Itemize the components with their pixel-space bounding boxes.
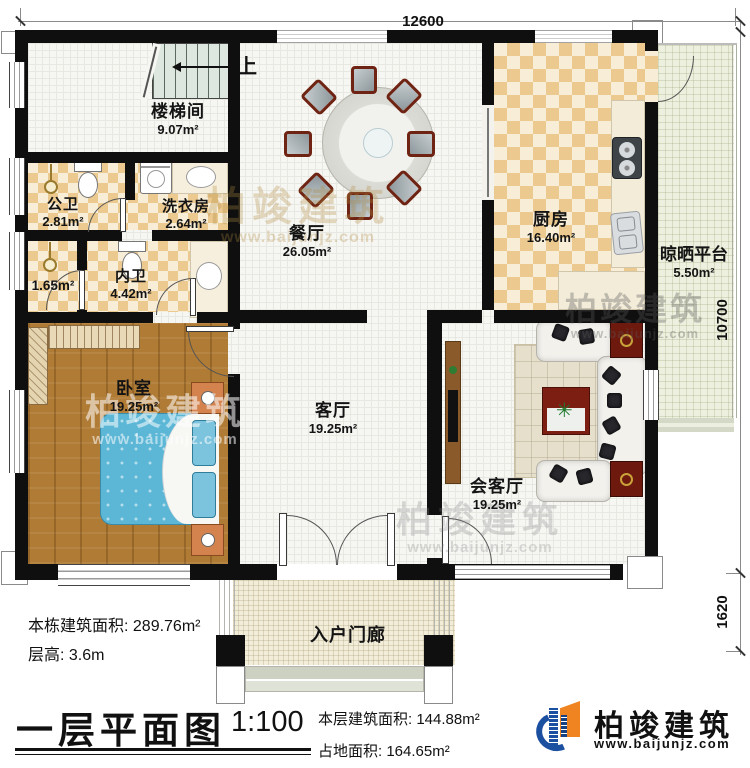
sofa-pillow bbox=[607, 393, 622, 408]
pillow bbox=[192, 472, 216, 518]
wall bbox=[645, 102, 658, 557]
window bbox=[9, 390, 25, 473]
land-area: 占地面积: 164.65m² bbox=[318, 740, 450, 761]
stove bbox=[612, 137, 642, 179]
room-label-stairwell: 楼梯间9.07m² bbox=[151, 102, 205, 138]
room-label-kitchen: 厨房16.40m² bbox=[527, 210, 575, 246]
wall bbox=[15, 312, 153, 323]
room-area: 16.40m² bbox=[527, 230, 575, 246]
window bbox=[9, 62, 25, 108]
floor-area: 本层建筑面积: 144.88m² bbox=[318, 708, 480, 729]
room-name: 洗衣房 bbox=[162, 198, 210, 216]
window bbox=[455, 565, 610, 579]
sliding-door bbox=[487, 108, 489, 197]
room-label-laundry: 洗衣房2.64m² bbox=[162, 198, 210, 232]
wardrobe bbox=[48, 325, 140, 349]
room-label-platform: 晾晒平台5.50m² bbox=[660, 245, 728, 281]
room-area: 2.81m² bbox=[42, 214, 83, 230]
stair-up-label: 上 bbox=[237, 50, 257, 79]
floor-height: 层高: 3.6m bbox=[28, 641, 104, 665]
tv-cabinet bbox=[445, 341, 461, 484]
toilet-bowl bbox=[78, 172, 98, 198]
window bbox=[535, 30, 612, 43]
porch-step bbox=[245, 666, 424, 692]
room-label-dining: 餐厅26.05m² bbox=[283, 224, 331, 260]
nightstand bbox=[191, 382, 224, 414]
room-name: 楼梯间 bbox=[151, 102, 205, 122]
room-label-living: 客厅19.25m² bbox=[309, 401, 357, 437]
company-logo-icon bbox=[536, 699, 590, 755]
washing-machine bbox=[140, 160, 172, 194]
sofa bbox=[536, 460, 612, 502]
room-area: 9.07m² bbox=[151, 122, 205, 138]
wall bbox=[15, 152, 240, 163]
window bbox=[643, 370, 659, 420]
drain-cord bbox=[49, 242, 51, 258]
platform-railing bbox=[732, 45, 737, 418]
dimension-label-height: 10700 bbox=[714, 290, 730, 350]
company-url: www.baijunjz.com bbox=[594, 736, 730, 751]
dimension-label-width: 12600 bbox=[392, 13, 454, 30]
floor-drying-platform bbox=[658, 45, 734, 418]
laundry-sink bbox=[186, 166, 216, 188]
toilet-tank bbox=[118, 241, 146, 252]
lazy-susan bbox=[363, 128, 393, 158]
end-table bbox=[610, 322, 643, 358]
room-name: 内卫 bbox=[110, 268, 151, 286]
room-name: 入户门廊 bbox=[310, 625, 386, 647]
end-table bbox=[610, 461, 643, 497]
room-area: 2.64m² bbox=[162, 216, 210, 232]
platform-edge bbox=[658, 43, 737, 45]
entrance-door-leaf bbox=[387, 513, 395, 566]
dimension-line bbox=[18, 21, 742, 22]
bathroom-sink bbox=[196, 262, 222, 290]
room-label-reception: 会客厅19.25m² bbox=[470, 477, 524, 513]
wall bbox=[427, 558, 442, 568]
room-area: 1.65m² bbox=[32, 278, 75, 294]
room-area: 19.25m² bbox=[470, 497, 524, 513]
title-underline bbox=[15, 754, 311, 755]
title-underline bbox=[15, 748, 311, 751]
wall bbox=[427, 310, 482, 323]
dresser bbox=[28, 327, 48, 405]
window bbox=[58, 564, 190, 586]
room-area: 19.25m² bbox=[110, 399, 158, 415]
room-name: 客厅 bbox=[309, 401, 357, 421]
stairs bbox=[152, 43, 232, 99]
floor-kitchen-door-patch bbox=[645, 43, 658, 103]
room-name: 厨房 bbox=[527, 210, 575, 230]
sofa-pillow bbox=[578, 328, 595, 345]
room-label-public-bath: 公卫2.81m² bbox=[42, 196, 83, 230]
room-area: 26.05m² bbox=[283, 244, 331, 260]
kitchen-sink bbox=[610, 211, 644, 256]
room-area: 4.42m² bbox=[110, 286, 151, 302]
corner-pilaster bbox=[627, 556, 663, 589]
drain-cord bbox=[50, 164, 52, 181]
dining-chair bbox=[407, 131, 435, 157]
room-label-porch: 入户门廊 bbox=[310, 625, 386, 647]
porch-column-base bbox=[424, 666, 453, 704]
nightstand bbox=[191, 524, 224, 556]
room-label-bedroom: 卧室19.25m² bbox=[110, 379, 158, 415]
dimension-line bbox=[740, 21, 741, 655]
dimension-label-porch: 1620 bbox=[714, 587, 730, 637]
wall bbox=[494, 310, 645, 323]
window bbox=[277, 30, 387, 43]
entrance-opening bbox=[277, 564, 397, 580]
platform-step bbox=[654, 418, 734, 432]
wall bbox=[125, 163, 135, 200]
room-name: 会客厅 bbox=[470, 477, 524, 497]
porch-side-steps bbox=[434, 580, 451, 636]
wall bbox=[645, 30, 658, 51]
dining-chair bbox=[351, 66, 377, 94]
wall bbox=[427, 323, 442, 515]
room-name: 卧室 bbox=[110, 379, 158, 399]
wall bbox=[240, 310, 367, 323]
wall bbox=[482, 43, 494, 105]
plant-icon: ✳ bbox=[556, 398, 573, 423]
dining-chair bbox=[347, 192, 373, 220]
sofa bbox=[536, 320, 612, 362]
room-area: 19.25m² bbox=[309, 421, 357, 437]
wall bbox=[15, 30, 28, 580]
floor-drain-icon bbox=[43, 258, 57, 272]
porch-column-base bbox=[216, 666, 245, 704]
room-name: 公卫 bbox=[42, 196, 83, 214]
scale-label: 1:100 bbox=[231, 706, 304, 739]
pillow bbox=[192, 420, 216, 466]
wall bbox=[152, 230, 228, 241]
room-label-closet: 1.65m² bbox=[32, 278, 75, 294]
porch-column bbox=[424, 635, 453, 666]
room-name: 餐厅 bbox=[283, 224, 331, 244]
entrance-door-leaf bbox=[279, 513, 287, 566]
building-total-area: 本栋建筑面积: 289.76m² bbox=[28, 612, 201, 636]
wall bbox=[228, 374, 240, 564]
floor-plan-canvas: 上 ✳ bbox=[0, 0, 750, 768]
porch-column bbox=[216, 635, 245, 666]
page-title: 一层平面图 bbox=[16, 700, 226, 754]
window bbox=[9, 232, 25, 290]
room-area: 5.50m² bbox=[660, 265, 728, 281]
porch-side-steps bbox=[219, 580, 236, 636]
floor-porch bbox=[233, 580, 455, 665]
wall bbox=[482, 200, 494, 310]
stair-arrow-icon bbox=[172, 62, 181, 72]
dining-chair bbox=[284, 131, 312, 157]
kitchen-counter bbox=[558, 271, 645, 310]
floor-drain-icon bbox=[44, 180, 58, 194]
room-label-private-bath: 内卫4.42m² bbox=[110, 268, 151, 302]
wall bbox=[228, 43, 240, 323]
window bbox=[9, 158, 25, 215]
wall bbox=[77, 241, 87, 270]
wall bbox=[197, 312, 240, 323]
room-name: 晾晒平台 bbox=[660, 245, 728, 265]
